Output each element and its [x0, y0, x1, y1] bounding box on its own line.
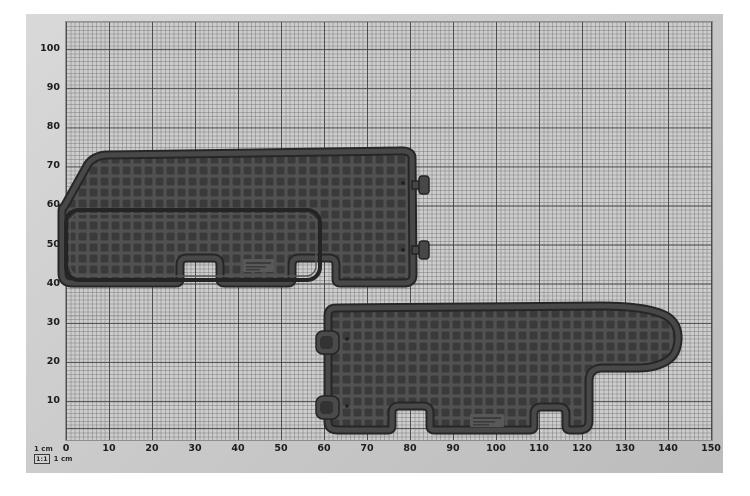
x-tick-label: 130 [610, 443, 640, 454]
graph-paper-grid [66, 22, 712, 440]
x-tick-label: 0 [51, 443, 81, 454]
y-tick-label: 10 [34, 395, 60, 406]
y-tick-label: 50 [34, 239, 60, 250]
x-tick-label: 40 [223, 443, 253, 454]
scale-ratio-unit: 1 cm [54, 455, 73, 463]
x-tick-label: 150 [696, 443, 726, 454]
x-tick-label: 20 [137, 443, 167, 454]
x-tick-label: 80 [395, 443, 425, 454]
x-tick-label: 120 [567, 443, 597, 454]
y-tick-label: 100 [34, 43, 60, 54]
y-tick-label: 60 [34, 199, 60, 210]
x-tick-label: 10 [94, 443, 124, 454]
y-tick-label: 70 [34, 160, 60, 171]
photo-of-floor-mats: 1 cm 1:1 1 cm 01020304050607080901001101… [26, 14, 723, 473]
scale-unit-label: 1 cm [34, 445, 53, 453]
x-tick-label: 70 [352, 443, 382, 454]
y-tick-label: 30 [34, 317, 60, 328]
x-tick-label: 90 [438, 443, 468, 454]
y-tick-label: 20 [34, 356, 60, 367]
y-tick-label: 40 [34, 278, 60, 289]
x-tick-label: 60 [309, 443, 339, 454]
y-tick-label: 90 [34, 82, 60, 93]
x-tick-label: 140 [653, 443, 683, 454]
x-tick-label: 50 [266, 443, 296, 454]
x-tick-label: 100 [481, 443, 511, 454]
page-background: 1 cm 1:1 1 cm 01020304050607080901001101… [0, 0, 750, 496]
y-tick-label: 80 [34, 121, 60, 132]
scale-ratio-box: 1:1 [34, 454, 50, 464]
scale-legend: 1:1 1 cm [34, 454, 72, 464]
x-tick-label: 30 [180, 443, 210, 454]
x-tick-label: 110 [524, 443, 554, 454]
